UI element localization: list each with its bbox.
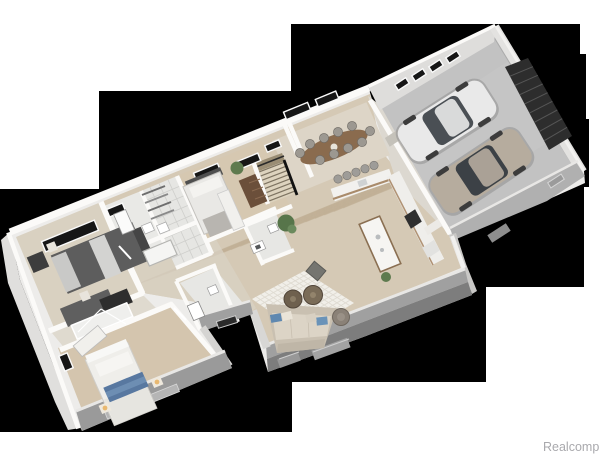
svg-text:Realcomp: Realcomp [543, 440, 599, 454]
